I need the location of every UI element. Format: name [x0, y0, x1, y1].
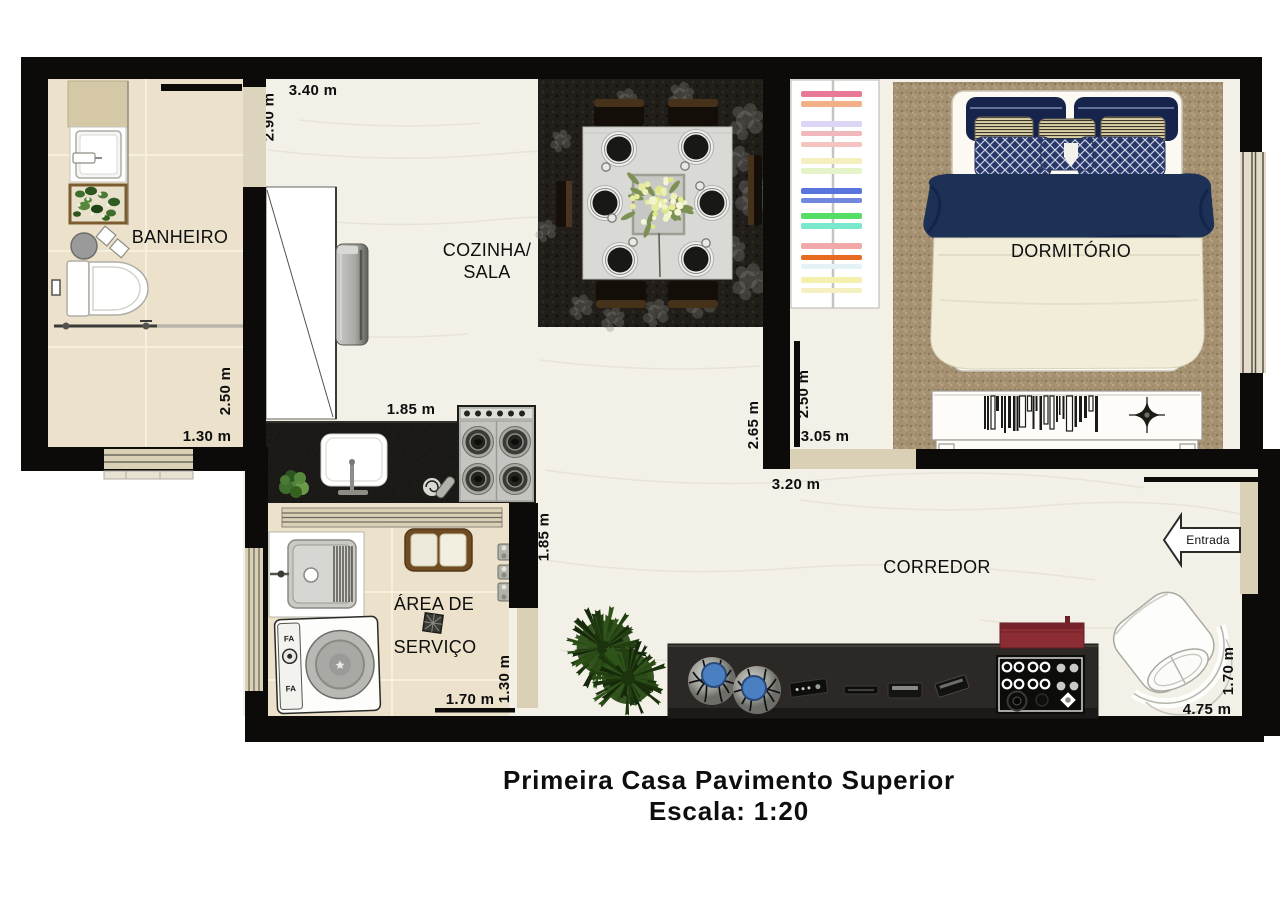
svg-text:1.85 m: 1.85 m	[387, 401, 436, 418]
svg-text:ÁREA DE: ÁREA DE	[394, 594, 474, 614]
svg-text:1.30 m: 1.30 m	[183, 428, 232, 445]
svg-text:BANHEIRO: BANHEIRO	[132, 227, 228, 247]
svg-text:Entrada: Entrada	[1186, 533, 1230, 547]
svg-text:FA: FA	[284, 634, 295, 643]
svg-text:3.05 m: 3.05 m	[801, 428, 850, 445]
svg-text:Escala: 1:20: Escala: 1:20	[649, 796, 809, 826]
svg-text:2.65 m: 2.65 m	[745, 401, 762, 450]
svg-text:2.50 m: 2.50 m	[795, 370, 812, 419]
svg-text:COZINHA/: COZINHA/	[443, 240, 531, 260]
svg-text:2.50 m: 2.50 m	[217, 367, 234, 416]
svg-text:SALA: SALA	[463, 262, 510, 282]
svg-text:FA: FA	[286, 684, 297, 693]
svg-text:SERVIÇO: SERVIÇO	[394, 637, 477, 657]
svg-text:1.70 m: 1.70 m	[446, 691, 495, 708]
svg-text:4.75 m: 4.75 m	[1183, 701, 1232, 718]
svg-text:1.30 m: 1.30 m	[496, 655, 513, 704]
svg-text:CORREDOR: CORREDOR	[883, 557, 990, 577]
svg-text:1.85 m: 1.85 m	[536, 513, 553, 562]
svg-text:Primeira Casa Pavimento Superi: Primeira Casa Pavimento Superior	[503, 765, 955, 795]
svg-text:1.70 m: 1.70 m	[1220, 647, 1237, 696]
svg-text:3.20 m: 3.20 m	[772, 476, 821, 493]
svg-text:3.40 m: 3.40 m	[289, 82, 338, 99]
svg-text:DORMITÓRIO: DORMITÓRIO	[1011, 240, 1131, 261]
